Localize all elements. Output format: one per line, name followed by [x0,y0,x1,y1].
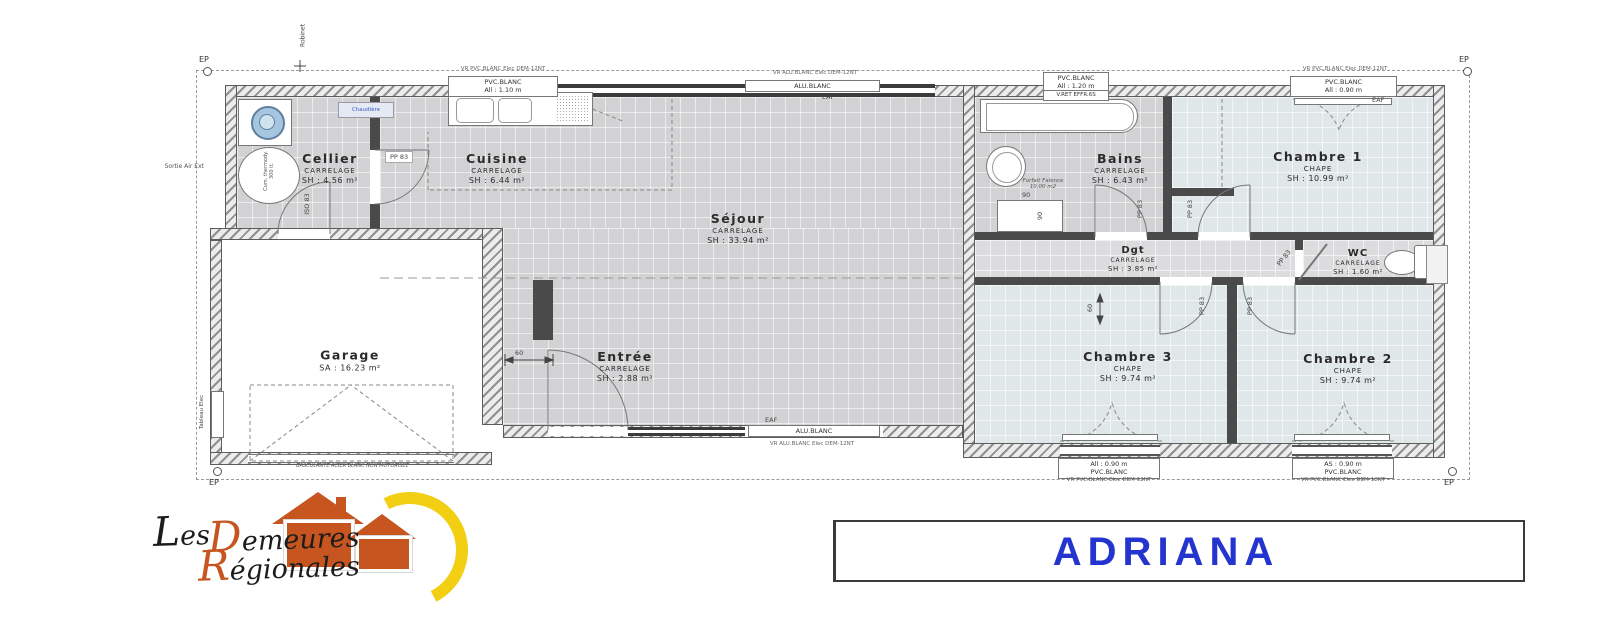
room-label-entree: EntréeCARRELAGESH : 2.88 m² [597,349,653,383]
room-label-dgt: DgtCARRELAGESH : 3.85 m² [1108,245,1158,273]
door-label-iso83: ISO 83 [303,189,311,219]
kitchen-sink-right [498,98,532,123]
window-label-kitchen: PVC.BLANCAll : 1.10 m [448,76,558,97]
window-sill-ch3 [1062,434,1158,441]
room-label-garage: GarageSA : 16.23 m² [319,348,380,373]
window-sill-ch2 [1294,434,1390,441]
room-label-cuisine: CuisineCARRELAGESH : 6.44 m² [466,151,528,185]
window-label-ch2: AS : 0.90 mPVC.BLANC [1292,458,1394,479]
chaudiere-label: Chaudière [352,107,380,113]
ep-label-top-left: EP [199,55,209,64]
eaf-label-bottom: EAF [765,416,777,424]
room-label-sejour: SéjourCARRELAGESH : 33.94 m² [707,211,769,245]
title-cartouche: ADRIANA [833,520,1525,582]
project-title: ADRIANA [986,530,1346,575]
dim-label-60-dgt: 60 [1086,298,1094,318]
room-label-wc: WCCARRELAGESH : 1.60 m² [1333,248,1383,276]
door-label-pp83-ch2: PP 83 [1246,294,1254,318]
door-label-pp83-ch1: PP 83 [1186,197,1194,221]
ep-marker-bottom-right [1448,467,1457,476]
brand-logo: Les Demeures Régionales [140,485,460,595]
dim-label-60-entree: 60 [515,349,523,357]
shower [997,200,1063,232]
ep-label-top-right: EP [1459,55,1469,64]
bay-label-top: ALU.BLANC [745,80,880,92]
ep-marker-top-right [1463,67,1472,76]
room-label-bains: BainsCARRELAGESH : 6.43 m² [1092,151,1148,185]
sortie-air-label: Sortie Air Ext [140,163,204,170]
kitchen-sink-left [456,98,494,123]
eaf-label-top-sejour: EAF [822,93,834,101]
vr-label-kitchen: VR PVC.BLANC Elec DEM-12NT [448,66,558,72]
window-label-ch1: PVC.BLANCAll : 0.90 m [1290,76,1397,97]
tableau-elec-label: Tableau Elec [199,388,205,436]
room-label-chambre2: Chambre 2CHAPESH : 9.74 m² [1303,351,1393,385]
tableau-elec-box [211,391,224,438]
forfait-faience-note: Forfait Faïence 10.00 m2 [1005,178,1081,190]
window-label-ch3: All : 0.90 mPVC.BLANC [1058,458,1160,479]
room-label-chambre1: Chambre 1CHAPESH : 10.99 m² [1273,149,1363,183]
door-label-pp83-ch3: PP 83 [1198,294,1206,318]
bathtub-inner-line [986,103,1134,131]
shower-width-label: 90 [1022,191,1030,199]
vr-label-bay-bottom: VR ALU.BLANC Elec DEM-12NT [732,441,892,447]
washer-drum-inner-icon [259,114,275,130]
brand-word-regionales: Régionales [197,536,360,591]
robinet-label: Robinet [300,14,307,58]
shower-depth-label: 90 [1036,206,1044,226]
door-label-pp83-cuisine: PP 83 [385,151,413,163]
ep-label-bottom-right: EP [1444,478,1454,487]
eaf-label-ch1: EAF [1372,96,1384,104]
door-label-pp83-bains: PP 83 [1136,197,1144,221]
kitchen-drainboard [556,95,588,123]
ep-marker-top-left [203,67,212,76]
garage-door-note: BASCULANTE ACIER BLANC NON MOTORISEE [270,463,435,469]
vr-label-ch3: VR PVC.BLANC Elec DEM-12NT [1058,477,1160,483]
vr-label-bay-top: VR ALU.BLANC Elec DEM-12NT [760,70,870,76]
ep-marker-bottom-left [213,467,222,476]
room-label-chambre3: Chambre 3CHAPESH : 9.74 m² [1083,349,1173,383]
window-note-bains: V.RET EFFR.6S [1043,90,1109,101]
vr-label-ch2: VR PVC.BLANC Elec DEM-12NT [1292,477,1394,483]
chaudiere-box: Chaudière [338,102,394,118]
bay-label-bottom: ALU.BLANC [748,425,880,437]
wall-vent-unit [1426,245,1448,284]
room-label-cellier: CellierCARRELAGESH : 4.56 m² [302,151,358,185]
small-house-body-icon [356,536,412,572]
cumulus-label: Cum. thermody. 300 lt. [263,145,275,197]
vr-label-ch1: VR PVC.BLANC Elec DEM-12NT [1293,66,1397,72]
